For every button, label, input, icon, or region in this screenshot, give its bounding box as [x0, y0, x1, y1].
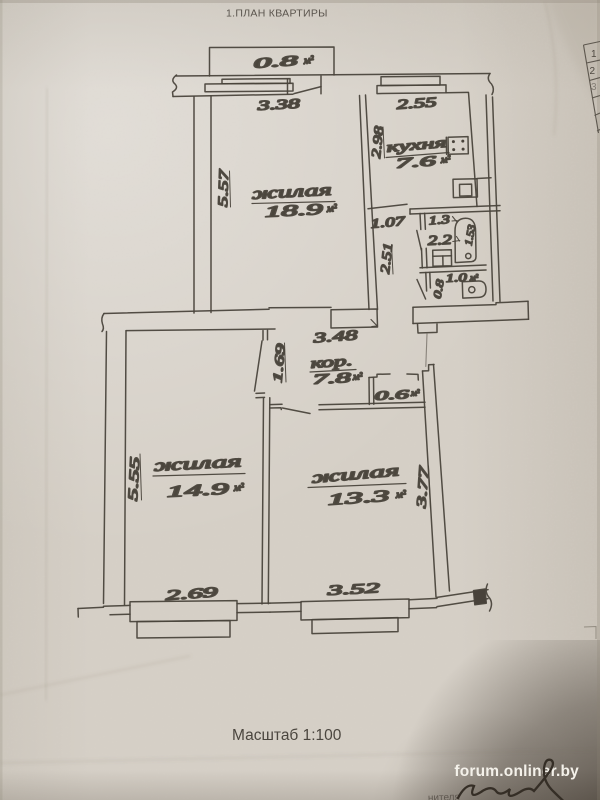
svg-text:м²: м² [439, 154, 452, 166]
svg-text:2.55: 2.55 [396, 94, 437, 112]
svg-text:м²: м² [410, 388, 421, 399]
svg-text:м²: м² [232, 481, 245, 494]
svg-text:18.9: 18.9 [264, 201, 323, 221]
svg-text:14.9: 14.9 [166, 481, 229, 501]
svg-text:1.0: 1.0 [446, 272, 468, 285]
svg-text:1.3: 1.3 [428, 212, 450, 227]
svg-text:3.52: 3.52 [325, 581, 380, 599]
svg-text:5.57: 5.57 [215, 168, 231, 207]
svg-text:0.6: 0.6 [374, 387, 410, 403]
svg-text:м²: м² [351, 371, 364, 383]
svg-text:кор.: кор. [310, 353, 353, 372]
svg-text:1: 1 [591, 49, 597, 60]
svg-text:м²: м² [325, 202, 338, 215]
svg-text:2: 2 [590, 66, 596, 77]
svg-text:5.55: 5.55 [125, 456, 142, 501]
svg-text:7.6: 7.6 [395, 154, 436, 172]
svg-text:1.07: 1.07 [370, 213, 406, 231]
svg-text:3.48: 3.48 [311, 328, 358, 346]
svg-text:м²: м² [394, 488, 407, 501]
svg-text:forum.onliner.by: forum.onliner.by [454, 763, 579, 780]
svg-text:3.38: 3.38 [256, 96, 301, 113]
svg-text:2.2: 2.2 [427, 232, 452, 248]
svg-text:Масштаб 1:100: Масштаб 1:100 [232, 727, 342, 744]
svg-text:1.ПЛАН КВАРТИРЫ: 1.ПЛАН КВАРТИРЫ [226, 8, 328, 20]
svg-text:нителя: нителя [428, 792, 460, 800]
svg-text:0.8: 0.8 [253, 54, 298, 72]
svg-text:7.8: 7.8 [312, 371, 351, 388]
svg-text:3: 3 [591, 82, 597, 93]
